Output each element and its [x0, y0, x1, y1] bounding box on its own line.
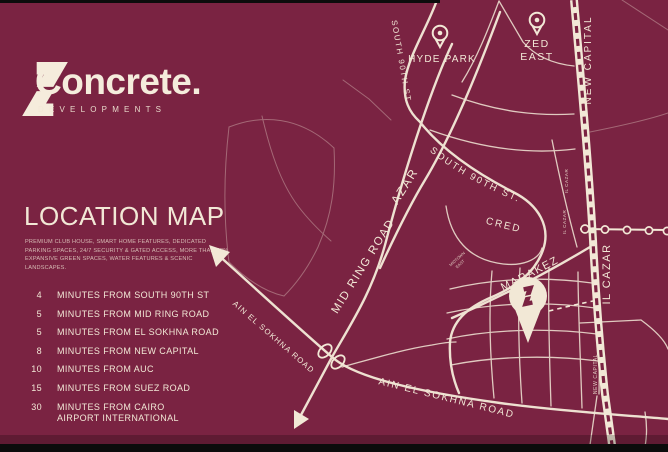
distance-row: 5MINUTES FROM EL SOKHNA ROAD: [26, 327, 219, 338]
label-zed-line1: ZED: [524, 38, 550, 50]
distance-list: 4MINUTES FROM SOUTH 90TH ST 5MINUTES FRO…: [26, 290, 219, 431]
brand-subtitle: DEVELOPMENTS: [38, 105, 201, 114]
distance-label: MINUTES FROM CAIRO AIRPORT INTERNATIONAL: [57, 402, 179, 424]
zed-east-pin-icon: [530, 13, 545, 34]
description-line: PREMIUM CLUB HOUSE, SMART HOME FEATURES,…: [25, 238, 235, 247]
distance-minutes: 5: [26, 327, 42, 338]
description-line: PARKING SPACES, 24/7 SECURITY & GATED AC…: [25, 247, 235, 256]
label-ain-sokhna-upper: AIN EL SOKHNA ROAD: [231, 299, 316, 375]
distance-row: 10MINUTES FROM AUC: [26, 364, 219, 375]
label-hyde-park: HYDE PARK: [408, 54, 476, 65]
label-ain-sokhna-lower: AIN EL SOKHNA ROAD: [377, 376, 515, 421]
distance-minutes: 4: [26, 290, 42, 301]
label-il-cazar-small-1: IL CAZAR: [564, 169, 569, 194]
label-south-90th-curve: SOUTH 90TH ST.: [428, 145, 523, 205]
distance-minutes: 15: [26, 383, 42, 394]
description-line: EXPANSIVE GREEN SPACES, WATER FEATURES &…: [25, 255, 235, 272]
distance-minutes: 5: [26, 309, 42, 320]
page-title: LOCATION MAP: [24, 201, 225, 232]
label-new-capital: NEW CAPITAL: [583, 15, 594, 104]
label-new-capital-small: NEW CAPITAL: [593, 354, 599, 394]
description-text: PREMIUM CLUB HOUSE, SMART HOME FEATURES,…: [25, 238, 235, 272]
location-map-poster: SOUTH 90TH ST. HYDE PARK ZED EAST NEW CA…: [0, 0, 668, 452]
label-azar: AZAR: [388, 165, 421, 206]
distance-row: 15MINUTES FROM SUEZ ROAD: [26, 383, 219, 394]
distance-label: MINUTES FROM AUC: [57, 364, 154, 375]
distance-minutes: 10: [26, 364, 42, 375]
road-mid-ring: [301, 44, 452, 415]
brand-logo: Concrete. DEVELOPMENTS: [22, 62, 201, 114]
label-cred: CRED: [485, 216, 523, 235]
distance-minutes: 8: [26, 346, 42, 357]
distance-label: MINUTES FROM SOUTH 90TH ST: [57, 290, 209, 301]
label-zed-line2: EAST: [520, 51, 553, 63]
top-letterbox-bar: [0, 0, 440, 3]
distance-minutes: 30: [26, 402, 42, 424]
distance-label: MINUTES FROM MID RING ROAD: [57, 309, 209, 320]
distance-row: 4MINUTES FROM SOUTH 90TH ST: [26, 290, 219, 301]
bottom-letterbox-bar: [0, 444, 668, 452]
distance-label: MINUTES FROM NEW CAPITAL: [57, 346, 199, 357]
distance-label: MINUTES FROM EL SOKHNA ROAD: [57, 327, 219, 338]
label-il-cazar: IL CAZAR: [601, 243, 613, 304]
hyde-park-pin-icon: [433, 26, 448, 47]
distance-label: MINUTES FROM SUEZ ROAD: [57, 383, 190, 394]
label-il-cazar-small-2: IL CAZAR: [562, 210, 567, 235]
distance-row: 5MINUTES FROM MID RING ROAD: [26, 309, 219, 320]
distance-row: 8MINUTES FROM NEW CAPITAL: [26, 346, 219, 357]
bottom-fade-band: [0, 435, 668, 444]
distance-row: 30MINUTES FROM CAIRO AIRPORT INTERNATION…: [26, 402, 219, 424]
